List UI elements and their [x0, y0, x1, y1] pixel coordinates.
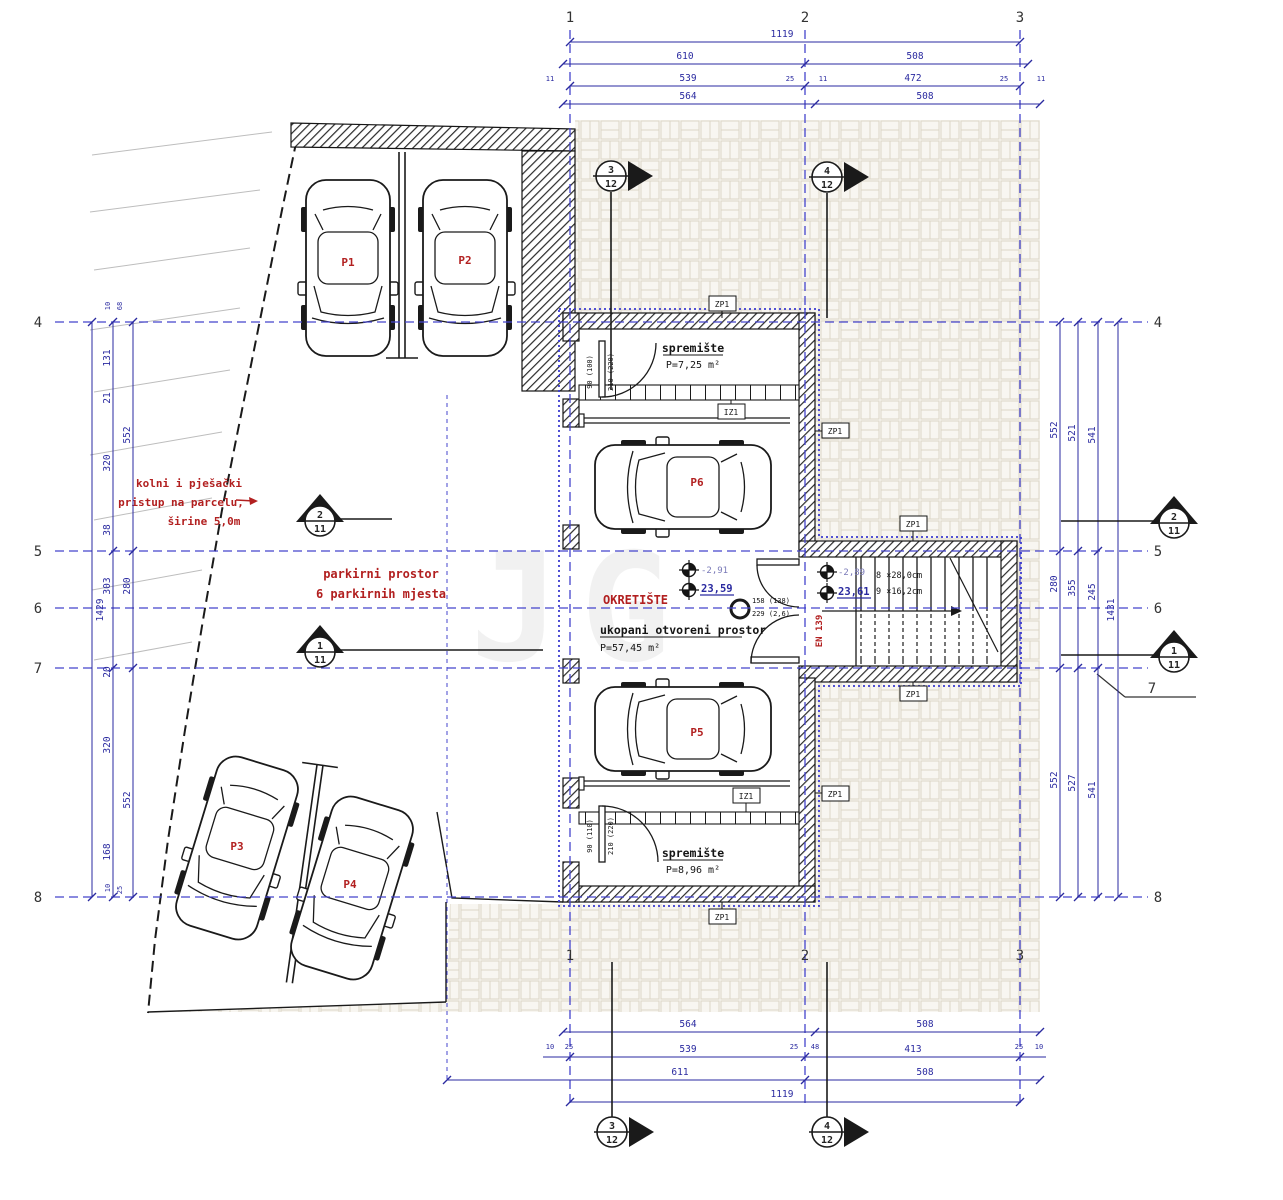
dim: 472 — [904, 73, 921, 84]
dim: 508 — [906, 51, 923, 62]
dim: 280 — [1049, 575, 1060, 592]
dim-small: 10 — [104, 884, 112, 892]
marker-num: 1 — [1171, 646, 1177, 657]
door2-width: 90 (110) — [586, 819, 594, 853]
dim: 611 — [671, 1067, 688, 1078]
dim: 552 — [1049, 421, 1060, 438]
grid-row-4-right: 4 — [1154, 315, 1162, 331]
tag-iz1: IZ1 — [724, 408, 739, 417]
grid-col-2-top: 2 — [801, 10, 809, 26]
dim-small: 10 — [546, 1043, 554, 1051]
access-note-line3: širine 5,0m — [168, 515, 241, 528]
column-circle — [731, 600, 749, 618]
dim: 539 — [679, 73, 696, 84]
grid-row-5-left: 5 — [34, 544, 42, 560]
open-space-title: ukopani otvoreni prostor — [600, 623, 766, 637]
tag-iz1: IZ1 — [739, 792, 754, 801]
dim-small: 10 — [1035, 1043, 1043, 1051]
dim: 508 — [916, 91, 933, 102]
dim-total-bottom: 1119 — [771, 1089, 794, 1100]
dim: 320 — [102, 736, 113, 753]
grid-col-3-top: 3 — [1016, 10, 1024, 26]
access-arrow — [249, 497, 258, 505]
dim: 280 — [122, 577, 133, 594]
storage1-area: P=7,25 m² — [666, 360, 720, 371]
marker-den: 12 — [605, 179, 617, 190]
tag-zp1: ZP1 — [906, 690, 921, 699]
dim: 355 — [1067, 579, 1078, 596]
door2-height: 210 (220) — [607, 817, 615, 855]
door1-width: 90 (100) — [586, 355, 594, 389]
marker-den: 11 — [1168, 660, 1180, 671]
marker-num: 2 — [317, 510, 323, 521]
dim: 413 — [904, 1044, 921, 1055]
access-note-line1: kolni i pješački — [136, 477, 242, 490]
marker-den: 11 — [314, 655, 326, 666]
grid-col-2-bottom: 2 — [801, 948, 809, 964]
floor-plan-svg: JG 8 ×28,0cm 9 ×16,2cm 90 (100) — [0, 0, 1283, 1200]
storage2-area: P=8,96 m² — [666, 865, 720, 876]
parking-note-line1: parkirni prostor — [323, 567, 439, 581]
dim-small: 48 — [811, 1043, 819, 1051]
dim: 552 — [1049, 771, 1060, 788]
dim: 552 — [122, 426, 133, 443]
car-label-p3: P3 — [230, 840, 243, 853]
dim: 610 — [676, 51, 693, 62]
dim: 541 — [1087, 426, 1098, 443]
dim: 564 — [679, 91, 696, 102]
open-space-area: P=57,45 m² — [600, 643, 660, 654]
dim: 21 — [102, 392, 113, 404]
car-label-p5: P5 — [690, 726, 703, 739]
dim: 541 — [1087, 781, 1098, 798]
grid-col-1-top: 1 — [566, 10, 574, 26]
dim: 508 — [916, 1019, 933, 1030]
dim-small: 25 — [790, 1043, 798, 1051]
marker-den: 11 — [1168, 526, 1180, 537]
tag-zp1: ZP1 — [828, 790, 843, 799]
dim: 303 — [102, 577, 113, 594]
grid-row-8-left: 8 — [34, 890, 42, 906]
dim-small: 11 — [819, 75, 827, 83]
dim: 320 — [102, 454, 113, 471]
dim: 20 — [102, 666, 113, 678]
level1-rel: -2,91 — [701, 566, 728, 576]
marker-num: 4 — [824, 1121, 830, 1132]
marker-num: 1 — [317, 641, 323, 652]
dim: 521 — [1067, 424, 1078, 441]
tag-zp1: ZP1 — [715, 913, 730, 922]
dim-small: 68 — [116, 302, 124, 310]
dim: 539 — [679, 1044, 696, 1055]
marker-den: 12 — [821, 1135, 833, 1146]
door3-width: 158 (138) — [752, 597, 790, 605]
marker-num: 3 — [608, 165, 614, 176]
dim-small: 25 — [1015, 1043, 1023, 1051]
section-marker-left-2-11: 2 11 — [296, 494, 392, 536]
dim: 564 — [679, 1019, 696, 1030]
dim-small: 25 — [116, 886, 124, 894]
dim: 508 — [916, 1067, 933, 1078]
storage1-title: spremište — [662, 341, 724, 355]
grid-col-3-bottom: 3 — [1016, 948, 1024, 964]
level2-abs: 23,61 — [838, 586, 870, 598]
grid-col-1-bottom: 1 — [566, 948, 574, 964]
tag-zp1: ZP1 — [715, 300, 730, 309]
grid-row-7-left: 7 — [34, 661, 42, 677]
stair-tread-label: 8 ×28,0cm — [876, 571, 922, 581]
grid-row-5-right: 5 — [1154, 544, 1162, 560]
car-label-p6: P6 — [690, 476, 704, 489]
dim-small: 25 — [565, 1043, 573, 1051]
dim: 245 — [1087, 583, 1098, 600]
dim-small: 25 — [786, 75, 794, 83]
dim: 552 — [122, 791, 133, 808]
en-label: EN 139 — [815, 615, 825, 648]
marker-num: 2 — [1171, 512, 1177, 523]
storage2-title: spremište — [662, 846, 724, 860]
dims-right: 552 280 552 521 355 527 541 245 541 1431 — [1049, 421, 1117, 798]
stair-riser-label: 9 ×16,2cm — [876, 587, 922, 597]
parking-note-line2: 6 parkirnih mjesta — [316, 587, 446, 601]
dim-total-top: 1119 — [771, 29, 794, 40]
tag-zp1: ZP1 — [828, 427, 843, 436]
marker-num: 4 — [824, 166, 830, 177]
dim-small: 11 — [1037, 75, 1045, 83]
dim: 168 — [102, 843, 113, 860]
car-label-p2: P2 — [458, 254, 471, 267]
dim-small: 25 — [1000, 75, 1008, 83]
dim: 131 — [102, 349, 113, 366]
marker-den: 11 — [314, 524, 326, 535]
level1-abs: 23,59 — [701, 583, 733, 595]
door3-height: 229 (2,6) — [752, 610, 790, 618]
annotations: kolni i pješački pristup na parcelu, šir… — [118, 477, 446, 601]
floor-plan-page: JG 8 ×28,0cm 9 ×16,2cm 90 (100) — [0, 0, 1283, 1200]
watermark: JG — [470, 522, 691, 696]
dims-top: 1119 610 508 539 472 11 25 11 25 11 564 … — [546, 29, 1045, 102]
turnaround-label: OKRETIŠTE — [603, 592, 668, 607]
grid-row-4-left: 4 — [34, 315, 42, 331]
marker-den: 12 — [606, 1135, 618, 1146]
grid-row-8-right: 8 — [1154, 890, 1162, 906]
level2-rel: -2,89 — [838, 568, 865, 578]
grid-row-6-left: 6 — [34, 601, 42, 617]
grid-row-6-right: 6 — [1154, 601, 1162, 617]
section-marker-right-2-11: 2 11 — [1061, 496, 1198, 538]
dim-small: 10 — [104, 302, 112, 310]
access-note-line2: pristup na parcelu, — [118, 496, 244, 509]
dim-total-right: 1431 — [1106, 598, 1117, 621]
dim: 38 — [102, 524, 113, 536]
grid-row-7-right: 7 — [1148, 681, 1156, 697]
section-marker-right-1-11: 1 11 — [1061, 630, 1198, 672]
dim-small: 11 — [546, 75, 554, 83]
marker-den: 12 — [821, 180, 833, 191]
tag-zp1: ZP1 — [906, 520, 921, 529]
dims-bottom: 564 508 539 413 10 25 25 48 25 10 611 50… — [546, 1019, 1043, 1100]
car-label-p1: P1 — [341, 256, 355, 269]
dim: 527 — [1067, 774, 1078, 791]
marker-num: 3 — [609, 1121, 615, 1132]
grid7-leader — [1097, 674, 1196, 697]
car-label-p4: P4 — [343, 878, 357, 891]
dim-total-left: 1429 — [95, 598, 106, 621]
